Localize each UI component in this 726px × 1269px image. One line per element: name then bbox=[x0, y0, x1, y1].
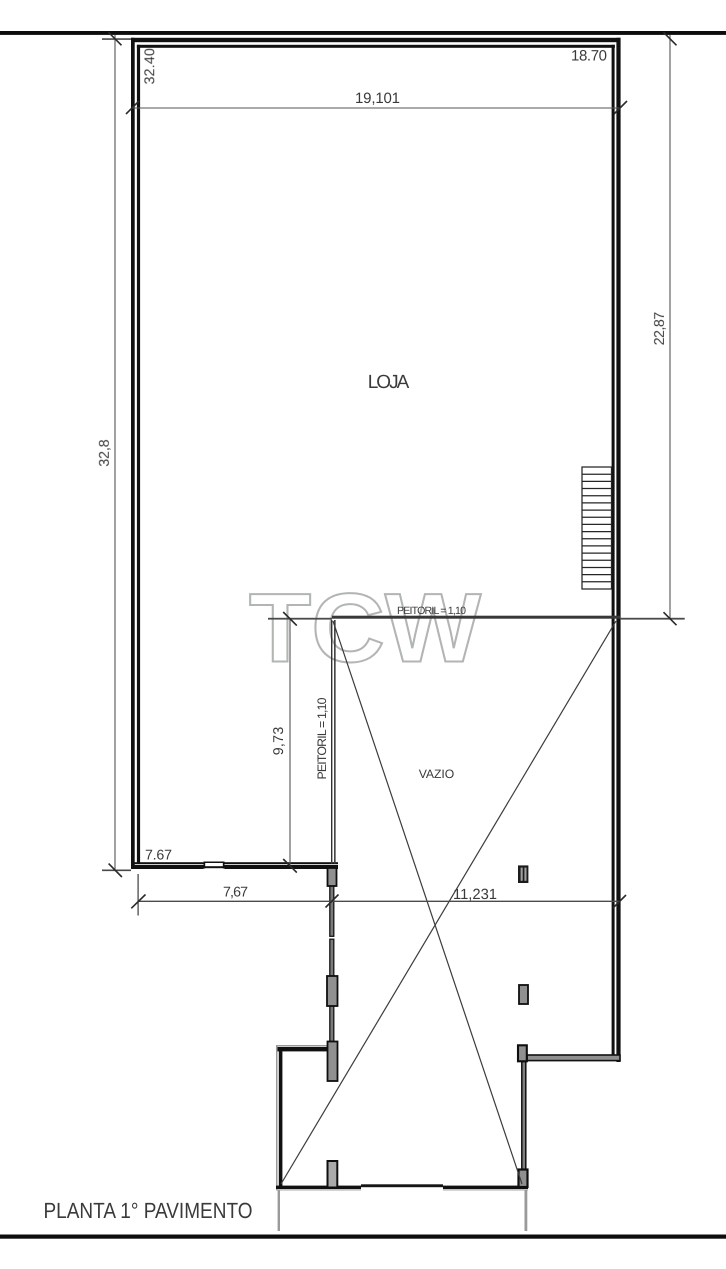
svg-text:7,67: 7,67 bbox=[223, 885, 248, 901]
svg-text:TCW: TCW bbox=[249, 573, 482, 683]
svg-text:32,8: 32,8 bbox=[97, 439, 113, 466]
svg-text:32.40: 32.40 bbox=[142, 48, 158, 84]
svg-text:18.70: 18.70 bbox=[571, 48, 607, 65]
svg-text:VAZIO: VAZIO bbox=[419, 767, 455, 781]
svg-text:11,231: 11,231 bbox=[453, 887, 497, 903]
svg-text:22,87: 22,87 bbox=[652, 312, 668, 346]
svg-text:LOJA: LOJA bbox=[368, 372, 410, 393]
svg-text:19,101: 19,101 bbox=[355, 90, 400, 107]
svg-text:PEITORIL = 1,10: PEITORIL = 1,10 bbox=[315, 697, 329, 779]
svg-text:7.67: 7.67 bbox=[145, 848, 172, 864]
svg-text:PLANTA 1° PAVIMENTO: PLANTA 1° PAVIMENTO bbox=[44, 1198, 253, 1223]
svg-text:9,73: 9,73 bbox=[271, 727, 287, 756]
svg-text:PEITORIL = 1,10: PEITORIL = 1,10 bbox=[397, 605, 466, 617]
